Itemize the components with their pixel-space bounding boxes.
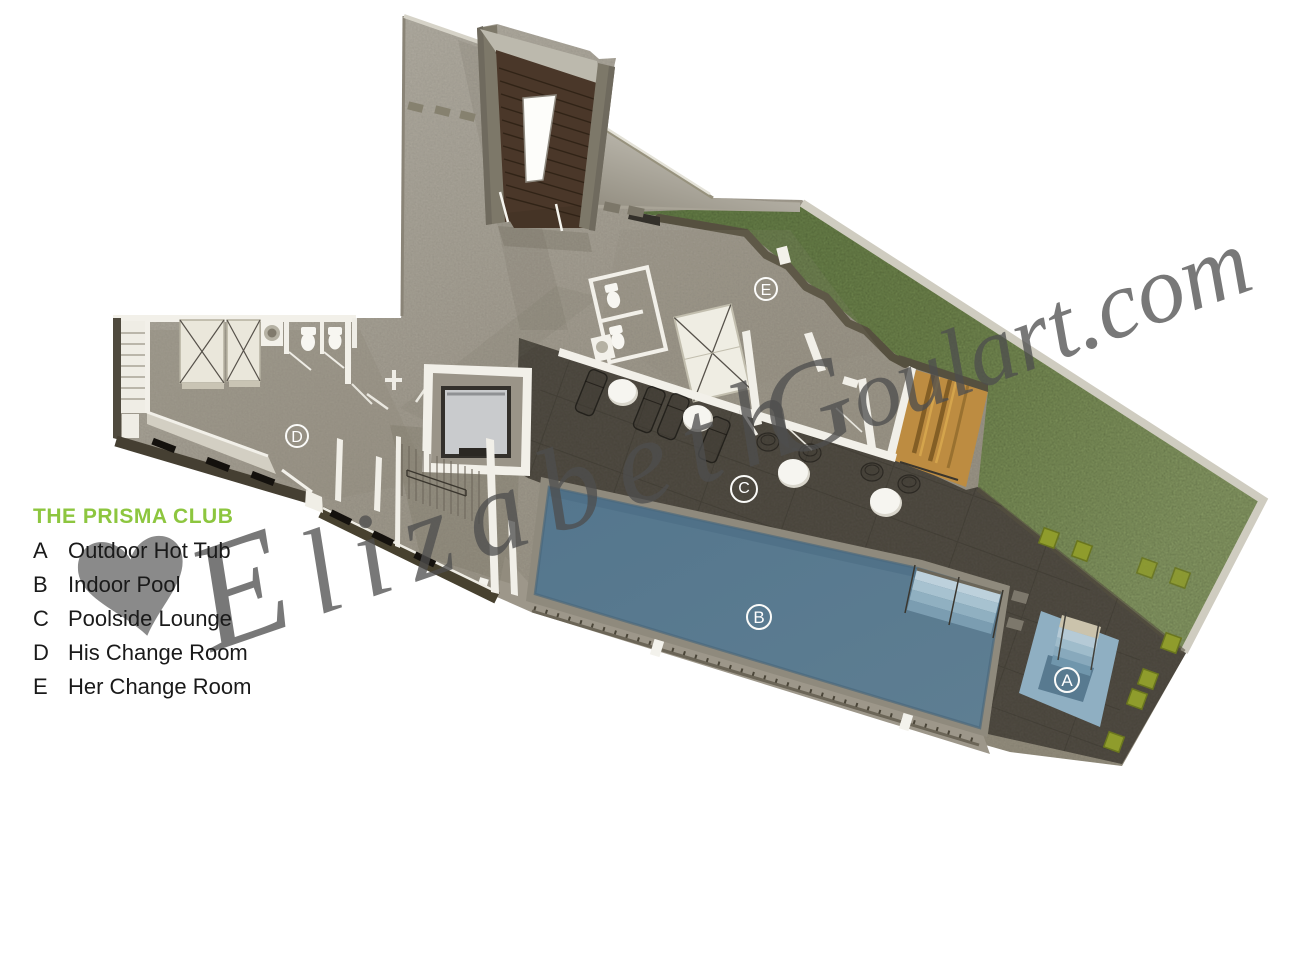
svg-text:E: E xyxy=(761,282,772,299)
svg-text:B: B xyxy=(753,608,764,627)
svg-text:B: B xyxy=(33,572,48,597)
svg-text:Her Change Room: Her Change Room xyxy=(68,674,251,699)
svg-text:A: A xyxy=(1061,671,1073,690)
svg-text:D: D xyxy=(291,429,303,446)
svg-text:THE PRISMA CLUB: THE PRISMA CLUB xyxy=(33,505,233,528)
svg-text:C: C xyxy=(33,606,49,631)
svg-text:Poolside Lounge: Poolside Lounge xyxy=(68,606,232,631)
svg-text:Indoor Pool: Indoor Pool xyxy=(68,572,181,597)
svg-text:A: A xyxy=(33,538,48,563)
svg-text:His Change Room: His Change Room xyxy=(68,640,248,665)
svg-text:D: D xyxy=(33,640,49,665)
svg-text:Outdoor Hot Tub: Outdoor Hot Tub xyxy=(68,538,231,563)
svg-text:E: E xyxy=(33,674,48,699)
